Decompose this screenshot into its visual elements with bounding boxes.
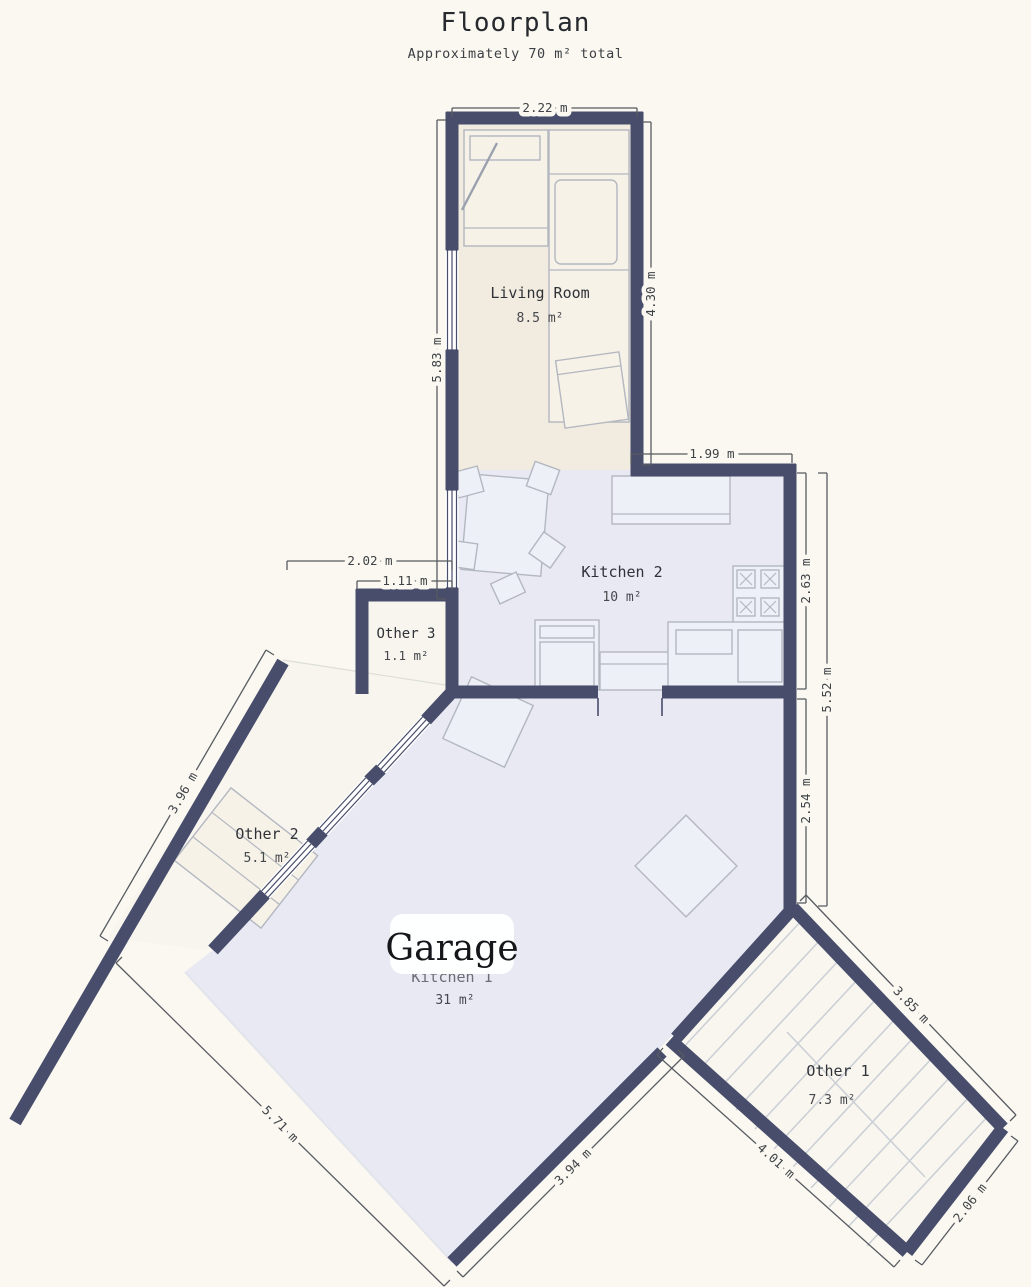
dim-living-left: 5.83 m <box>429 337 444 382</box>
page-header: Floorplan Approximately 70 m² total <box>0 0 1031 62</box>
appliance <box>535 620 599 690</box>
garage-overlay-label: Garage <box>385 928 518 969</box>
dim-garage-left: 5.71 m <box>259 1102 302 1145</box>
sink-counter <box>668 622 788 690</box>
page-title: Floorplan <box>0 8 1031 38</box>
dim-living-top: 2.22 m <box>522 100 567 115</box>
other1-area-label: 7.3 m² <box>809 1093 856 1108</box>
floorplan-drawing: 2.22 m 4.30 m 5.83 m 1.99 m 2.63 m 5.52 … <box>0 0 1031 1287</box>
dim-right-total: 5.52 m <box>819 667 834 712</box>
other3-area-label: 1.1 m² <box>383 648 428 663</box>
other1-label: Other 1 <box>806 1062 869 1080</box>
kitchen2-label: Kitchen 2 <box>581 563 662 581</box>
dim-other3-inner: 1.11 m <box>382 573 427 588</box>
other3-label: Other 3 <box>376 626 435 642</box>
living-room-label: Living Room <box>490 284 589 302</box>
bed <box>464 130 548 246</box>
page-subtitle: Approximately 70 m² total <box>0 46 1031 62</box>
living-room-area-label: 8.5 m² <box>517 311 564 326</box>
window <box>446 490 458 588</box>
other2-area-label: 5.1 m² <box>244 851 291 866</box>
window <box>446 250 458 350</box>
kitchen-counter-top <box>612 476 730 524</box>
kitchen1-area-label: 31 m² <box>435 993 474 1008</box>
dim-living-right: 4.30 m <box>643 271 658 316</box>
dim-kitchen-right: 2.63 m <box>798 558 813 603</box>
other2-label: Other 2 <box>235 825 298 843</box>
stove <box>733 566 789 624</box>
dim-other3-outer: 2.02 m <box>347 553 392 568</box>
dim-right-lower: 2.54 m <box>798 778 813 823</box>
armchair <box>556 352 629 428</box>
dim-kitchen-top: 1.99 m <box>689 446 734 461</box>
kitchen2-area-label: 10 m² <box>602 590 641 605</box>
